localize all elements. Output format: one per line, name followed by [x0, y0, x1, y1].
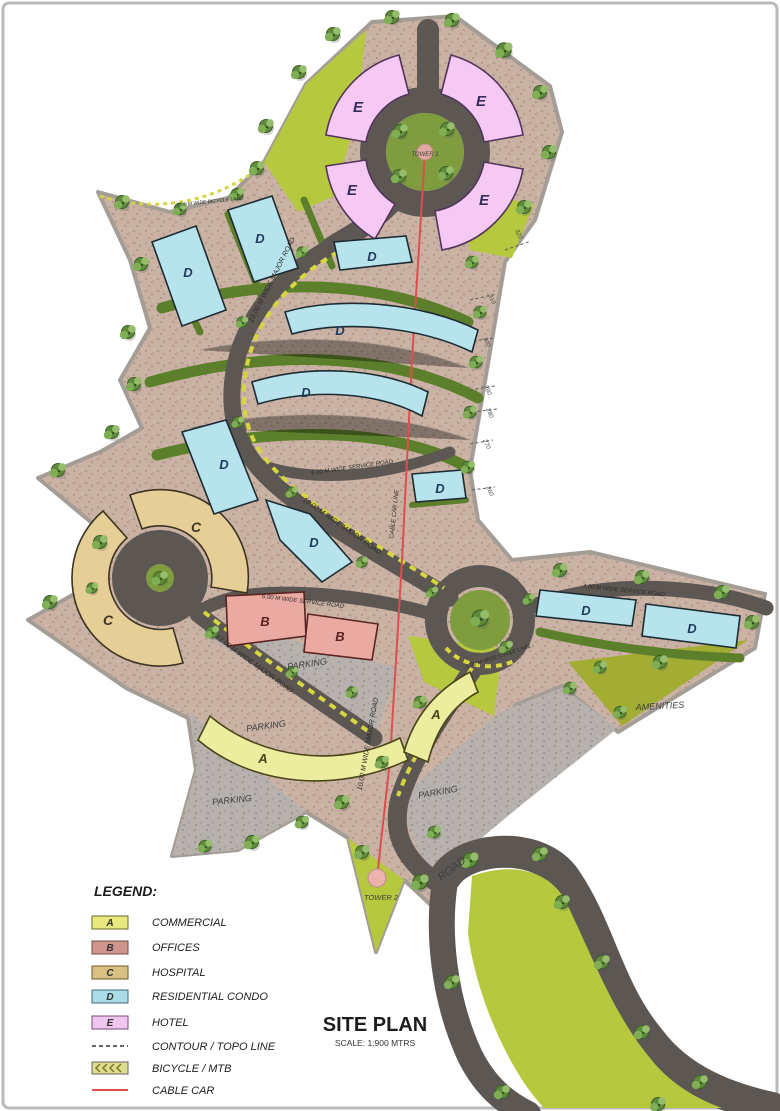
building-label-B-1: B	[260, 614, 269, 629]
building-label-A-2: A	[430, 707, 440, 722]
amenities-label: AMENITIES	[635, 700, 685, 713]
legend-label-contour: CONTOUR / TOPO LINE	[152, 1041, 276, 1053]
building-label-E-4: E	[479, 192, 490, 209]
legend-title: LEGEND:	[94, 883, 157, 899]
legend-label-cable-car: CABLE CAR	[152, 1085, 214, 1097]
legend-label-hospital: HOSPITAL	[152, 967, 206, 979]
building-label-D-2: D	[255, 231, 265, 246]
page-title: SITE PLAN	[323, 1014, 427, 1036]
building-label-D-7: D	[309, 535, 319, 550]
legend-label-residential-condo: RESIDENTIAL CONDO	[152, 991, 268, 1003]
building-label-D-10: D	[687, 621, 697, 636]
legend-label-hotel: HOTEL	[152, 1017, 189, 1029]
building-label-C-2: C	[103, 612, 114, 628]
legend-key-hospital: C	[106, 968, 114, 979]
page-scale: SCALE: 1:900 MTRS	[335, 1038, 416, 1048]
legend: LEGEND: A COMMERCIAL B OFFICES C HOSPITA…	[92, 883, 276, 1097]
building-label-D-3: D	[367, 249, 377, 264]
building-label-D-9: D	[581, 603, 591, 618]
legend-key-residential-condo: D	[106, 992, 113, 1003]
building-label-D-6: D	[219, 457, 229, 472]
building-label-E-2: E	[476, 93, 487, 110]
legend-label-bicycle: BICYCLE / MTB	[152, 1063, 231, 1075]
legend-key-hotel: E	[107, 1018, 114, 1029]
building-label-D-8: D	[435, 481, 445, 496]
building-label-C-1: C	[191, 519, 202, 535]
legend-label-commercial: COMMERCIAL	[152, 917, 227, 929]
building-label-D-4: D	[335, 323, 345, 338]
contour-label-270: 270	[481, 438, 491, 451]
tower-1-label: TOWER 1	[411, 152, 438, 158]
building-label-D-5: D	[301, 385, 311, 400]
legend-key-commercial: A	[105, 918, 113, 929]
tower-2-label: TOWER 2	[364, 893, 399, 902]
title-block: SITE PLAN SCALE: 1:900 MTRS	[323, 1014, 427, 1048]
contour-label-260: 260	[484, 485, 494, 498]
building-label-A-1: A	[257, 751, 267, 766]
legend-key-offices: B	[106, 943, 113, 954]
building-label-D-1: D	[183, 265, 193, 280]
site-plan-page: E E E E D D D D D D D D D D C C B B A A …	[0, 0, 780, 1111]
building-label-E-1: E	[353, 99, 364, 116]
legend-label-offices: OFFICES	[152, 942, 200, 954]
site-plan-drawing: E E E E D D D D D D D D D D C C B B A A …	[0, 0, 780, 1111]
building-label-E-3: E	[347, 182, 358, 199]
tower-2-marker	[368, 869, 386, 887]
contour-label-280: 280	[484, 407, 494, 420]
building-label-B-2: B	[335, 629, 344, 644]
